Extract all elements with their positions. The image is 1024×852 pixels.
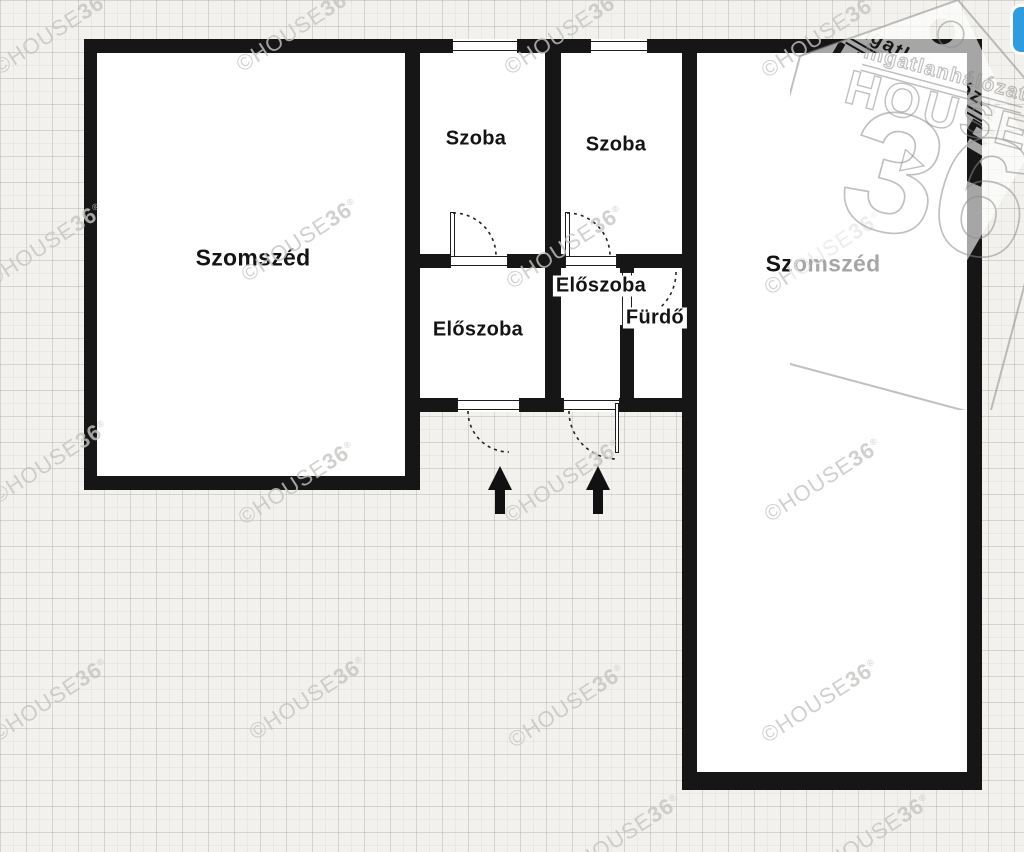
room-label-furdo: Fürdő [623,308,687,329]
room-label-eloszoba-left: Előszoba [433,319,523,342]
floor-plan: Szomszéd Szoba Szoba Előszoba Előszoba F… [0,0,1024,852]
room-label-szoba-left: Szoba [446,128,506,151]
house36-logo: ingatlanhálózat HOUSE 36 ingatlanhálózat… [790,0,1024,410]
blue-button-fragment[interactable] [1013,7,1024,52]
door-swing-arc [453,213,496,256]
door-swing-arc [468,411,509,452]
room-label-eloszoba-right: Előszoba [553,276,649,297]
room-label-szoba-right: Szoba [586,134,646,157]
